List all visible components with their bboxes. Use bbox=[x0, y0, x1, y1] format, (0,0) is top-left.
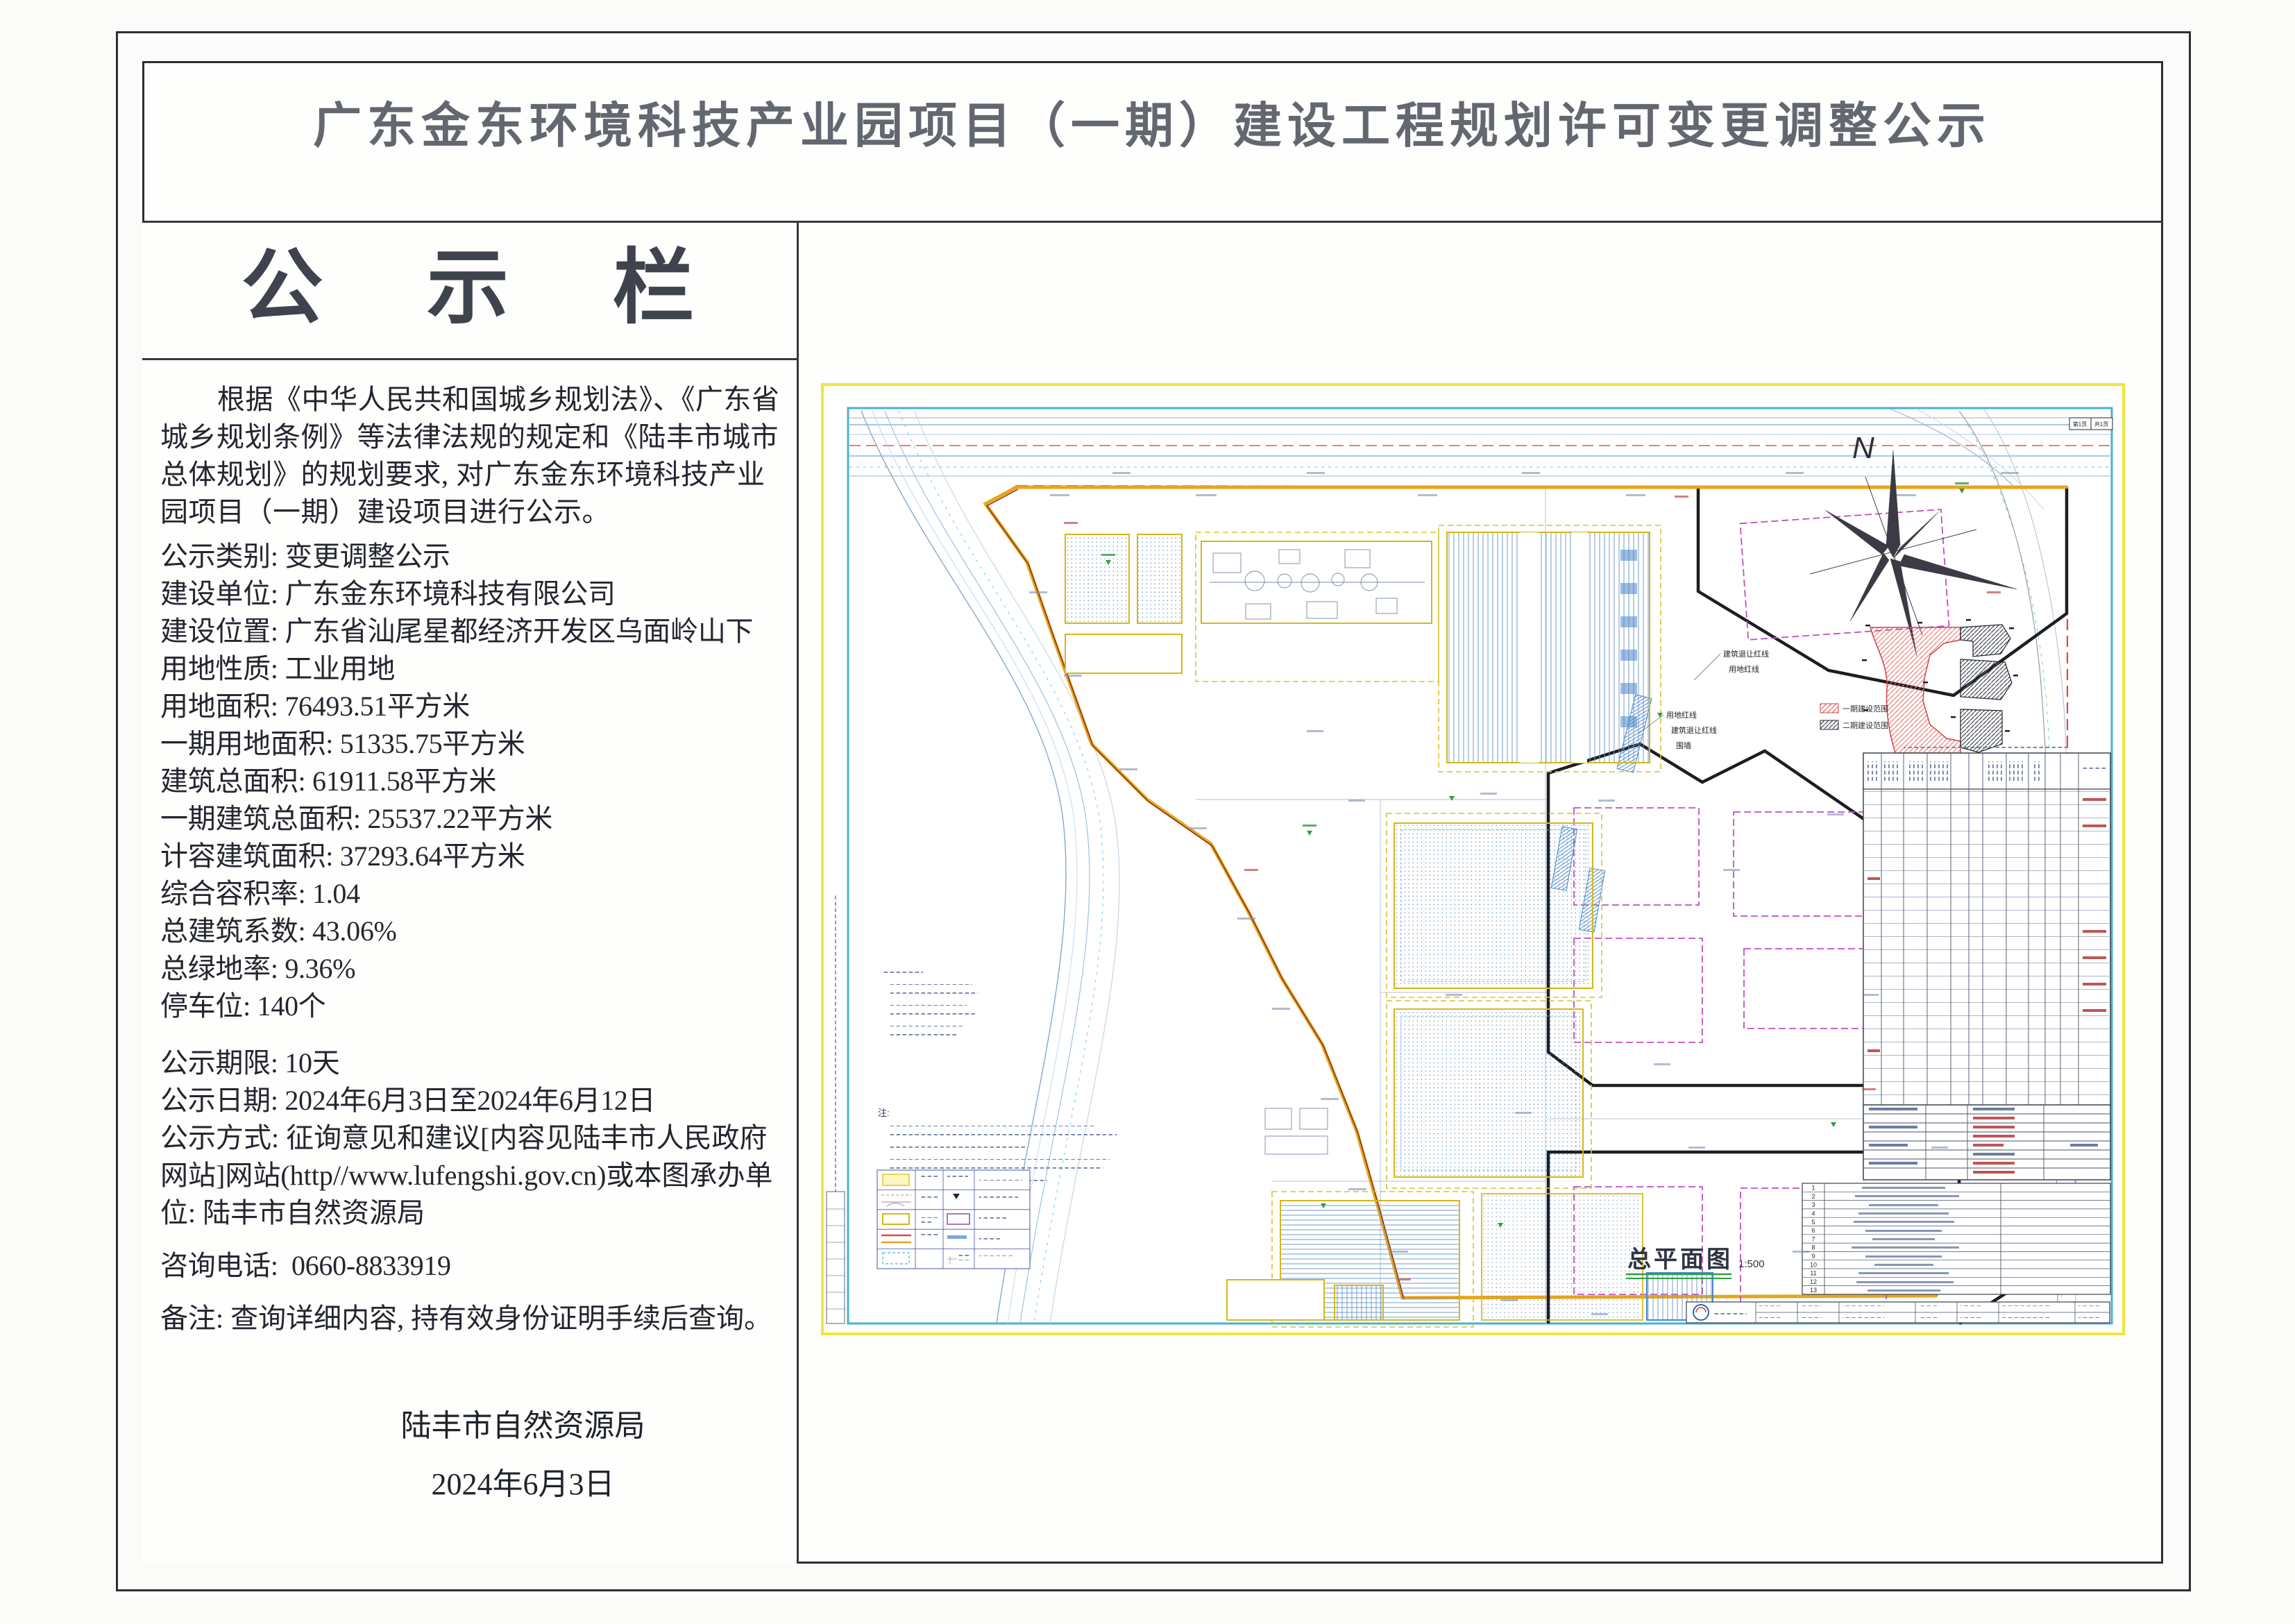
field-separator: : bbox=[271, 1047, 285, 1079]
field-value: 2024年6月3日至2024年6月12日 bbox=[285, 1085, 655, 1116]
field-value: 37293.64平方米 bbox=[340, 840, 525, 872]
page-box-left: 第1页 bbox=[2073, 421, 2087, 428]
field-line: 计容建筑面积: 37293.64平方米 bbox=[160, 838, 781, 875]
svg-text:11: 11 bbox=[1810, 1270, 1816, 1277]
remark-line: 备注: 查询详细内容, 持有效身份证明手续后查询。 bbox=[160, 1300, 781, 1337]
field-line: 综合容积率: 1.04 bbox=[160, 875, 781, 913]
field-line: 一期建筑总面积: 25537.22平方米 bbox=[160, 800, 781, 838]
field-line: 总绿地率: 9.36% bbox=[160, 950, 781, 988]
field-line: 建筑总面积: 61911.58平方米 bbox=[160, 763, 781, 800]
field-label: 停车位 bbox=[160, 990, 243, 1022]
setback-label: 建筑退让红线 bbox=[1671, 725, 1717, 735]
svg-text:9: 9 bbox=[1811, 1253, 1815, 1260]
publicity-line: 公示日期: 2024年6月3日至2024年6月12日 bbox=[160, 1082, 781, 1119]
field-label: 总建筑系数 bbox=[160, 915, 298, 947]
signature-block: 陆丰市自然资源局 2024年6月3日 bbox=[160, 1397, 781, 1514]
field-line: 停车位: 140个 bbox=[160, 988, 781, 1025]
field-value: 0660-8833919 bbox=[291, 1250, 451, 1281]
redline-label: 用地红线 bbox=[1666, 710, 1697, 720]
compass-n-label: N bbox=[1852, 431, 1874, 465]
field-separator: : bbox=[298, 766, 313, 797]
page-box-right: 共1页 bbox=[2094, 421, 2108, 428]
field-value: 51335.75平方米 bbox=[340, 728, 525, 759]
field-separator: : bbox=[271, 653, 285, 684]
title-block bbox=[1686, 1302, 2110, 1323]
signature-org: 陆丰市自然资源局 bbox=[264, 1397, 781, 1455]
signature-date: 2024年6月3日 bbox=[264, 1455, 781, 1514]
field-line: 公示类别: 变更调整公示 bbox=[160, 538, 781, 575]
field-label: 公示类别 bbox=[160, 541, 271, 572]
field-label: 建设单位 bbox=[160, 578, 271, 609]
field-line: 用地面积: 76493.51平方米 bbox=[160, 688, 781, 725]
legend-label-phase2: 二期建设范围 bbox=[1843, 720, 1888, 730]
numbered-list-table: 1 2 3 4 5 6 7 8 9 10 11 12 13 bbox=[1802, 1183, 2110, 1294]
field-separator: : bbox=[325, 840, 340, 872]
field-label: 计容建筑面积 bbox=[160, 840, 325, 872]
notice-body: 根据《中华人民共和国城乡规划法》、《广东省城乡规划条例》等法律法规的规定和《陆丰… bbox=[142, 360, 797, 1514]
plan-scale: 1:500 bbox=[1738, 1258, 1765, 1270]
site-plan-drawing: N bbox=[821, 383, 2125, 1335]
setback-label: 建筑退让红线 bbox=[1723, 649, 1769, 659]
field-line: 建设位置: 广东省汕尾星都经济开发区乌面岭山下 bbox=[160, 613, 781, 650]
field-line: 建设单位: 广东金东环境科技有限公司 bbox=[160, 575, 781, 613]
field-separator: : bbox=[271, 953, 285, 984]
site-plan-area: N bbox=[821, 383, 2125, 1335]
field-line: 用地性质: 工业用地 bbox=[160, 650, 781, 688]
notice-intro: 根据《中华人民共和国城乡规划法》、《广东省城乡规划条例》等法律法规的规定和《陆丰… bbox=[160, 381, 781, 531]
field-separator: : bbox=[271, 691, 285, 722]
field-value: 25537.22平方米 bbox=[367, 803, 552, 834]
notice-board-heading: 公 示 栏 bbox=[142, 223, 797, 360]
building-schedule-table bbox=[1863, 744, 2110, 1180]
field-line: 总建筑系数: 43.06% bbox=[160, 913, 781, 950]
legend-symbol-building bbox=[883, 1174, 909, 1185]
field-separator: : bbox=[243, 990, 257, 1022]
field-label: 备注 bbox=[160, 1303, 216, 1334]
publicity-method-line: 公示方式: 征询意见和建议[内容见陆丰市人民政府网站]网站(http//www.… bbox=[160, 1119, 781, 1232]
field-label: 用地性质 bbox=[160, 653, 271, 684]
field-separator: : bbox=[271, 1085, 285, 1116]
legend-symbol-blue bbox=[947, 1235, 967, 1239]
svg-text:4: 4 bbox=[1811, 1210, 1815, 1217]
field-label: 公示日期 bbox=[160, 1085, 271, 1116]
field-label: 建筑总面积 bbox=[160, 766, 298, 797]
field-separator: : bbox=[353, 803, 368, 834]
field-value: 43.06% bbox=[312, 915, 397, 947]
field-label: 公示方式 bbox=[160, 1122, 271, 1153]
field-label: 公示期限 bbox=[160, 1047, 271, 1079]
field-separator: : bbox=[271, 541, 285, 572]
svg-text:10: 10 bbox=[1810, 1261, 1817, 1268]
field-label: 一期用地面积 bbox=[160, 728, 325, 759]
field-separator: : bbox=[216, 1303, 230, 1334]
legend-label-phase1: 一期建设范围 bbox=[1843, 704, 1888, 713]
notes-title: 注: bbox=[878, 1108, 890, 1118]
field-value: 61911.58平方米 bbox=[312, 766, 496, 797]
svg-text:6: 6 bbox=[1811, 1227, 1815, 1234]
wall-label: 围墙 bbox=[1676, 741, 1691, 750]
field-separator: : bbox=[298, 915, 313, 947]
svg-text:8: 8 bbox=[1811, 1244, 1815, 1251]
field-value: 广东金东环境科技有限公司 bbox=[285, 578, 615, 609]
document-title: 广东金东环境科技产业园项目（一期）建设工程规划许可变更调整公示 bbox=[167, 87, 2137, 157]
field-separator: : bbox=[271, 1122, 286, 1153]
field-label: 咨询电话 bbox=[160, 1250, 271, 1281]
field-value: 10天 bbox=[285, 1047, 339, 1079]
publicity-line: 公示期限: 10天 bbox=[160, 1044, 781, 1082]
field-label: 总绿地率 bbox=[160, 953, 271, 984]
table-title-bar bbox=[1904, 744, 2070, 748]
field-value: 76493.51平方米 bbox=[285, 691, 470, 722]
legend-swatch-phase1 bbox=[1820, 704, 1838, 713]
field-value: 查询详细内容, 持有效身份证明手续后查询。 bbox=[230, 1303, 772, 1334]
field-value: 变更调整公示 bbox=[285, 541, 450, 572]
field-separator: : bbox=[325, 728, 340, 759]
field-separator: : bbox=[271, 616, 285, 647]
field-value: 140个 bbox=[257, 990, 326, 1022]
field-separator: : bbox=[271, 1250, 285, 1281]
page-count-box: 第1页 共1页 bbox=[2069, 418, 2112, 430]
notice-board-panel: 公 示 栏 根据《中华人民共和国城乡规划法》、《广东省城乡规划条例》等法律法规的… bbox=[142, 223, 799, 1564]
svg-text:13: 13 bbox=[1810, 1287, 1817, 1294]
plan-title: 总平面图 bbox=[1627, 1246, 1733, 1273]
redline-label: 用地红线 bbox=[1729, 664, 1759, 674]
legend-swatch-phase2 bbox=[1820, 720, 1838, 729]
svg-text:3: 3 bbox=[1811, 1201, 1815, 1208]
field-label: 用地面积 bbox=[160, 691, 271, 722]
svg-text:7: 7 bbox=[1811, 1235, 1815, 1242]
field-value: 工业用地 bbox=[285, 653, 395, 684]
scanned-notice-page: 广东金东环境科技产业园项目（一期）建设工程规划许可变更调整公示 公 示 栏 根据… bbox=[0, 0, 2295, 1624]
map-legend-table bbox=[877, 1170, 1030, 1269]
field-separator: : bbox=[298, 878, 313, 909]
field-label: 综合容积率 bbox=[160, 878, 298, 909]
field-label: 一期建筑总面积 bbox=[160, 803, 353, 834]
phone-line: 咨询电话: 0660-8833919 bbox=[160, 1247, 781, 1285]
field-value: 广东省汕尾星都经济开发区乌面岭山下 bbox=[285, 616, 753, 647]
field-value: 9.36% bbox=[285, 953, 355, 984]
svg-text:12: 12 bbox=[1810, 1278, 1817, 1285]
svg-text:2: 2 bbox=[1811, 1193, 1815, 1200]
field-value: 1.04 bbox=[312, 878, 360, 909]
svg-text:1: 1 bbox=[1811, 1185, 1815, 1192]
svg-text:5: 5 bbox=[1811, 1219, 1815, 1226]
field-line: 一期用地面积: 51335.75平方米 bbox=[160, 725, 781, 763]
field-label: 建设位置 bbox=[160, 616, 271, 647]
field-separator: : bbox=[271, 578, 285, 609]
